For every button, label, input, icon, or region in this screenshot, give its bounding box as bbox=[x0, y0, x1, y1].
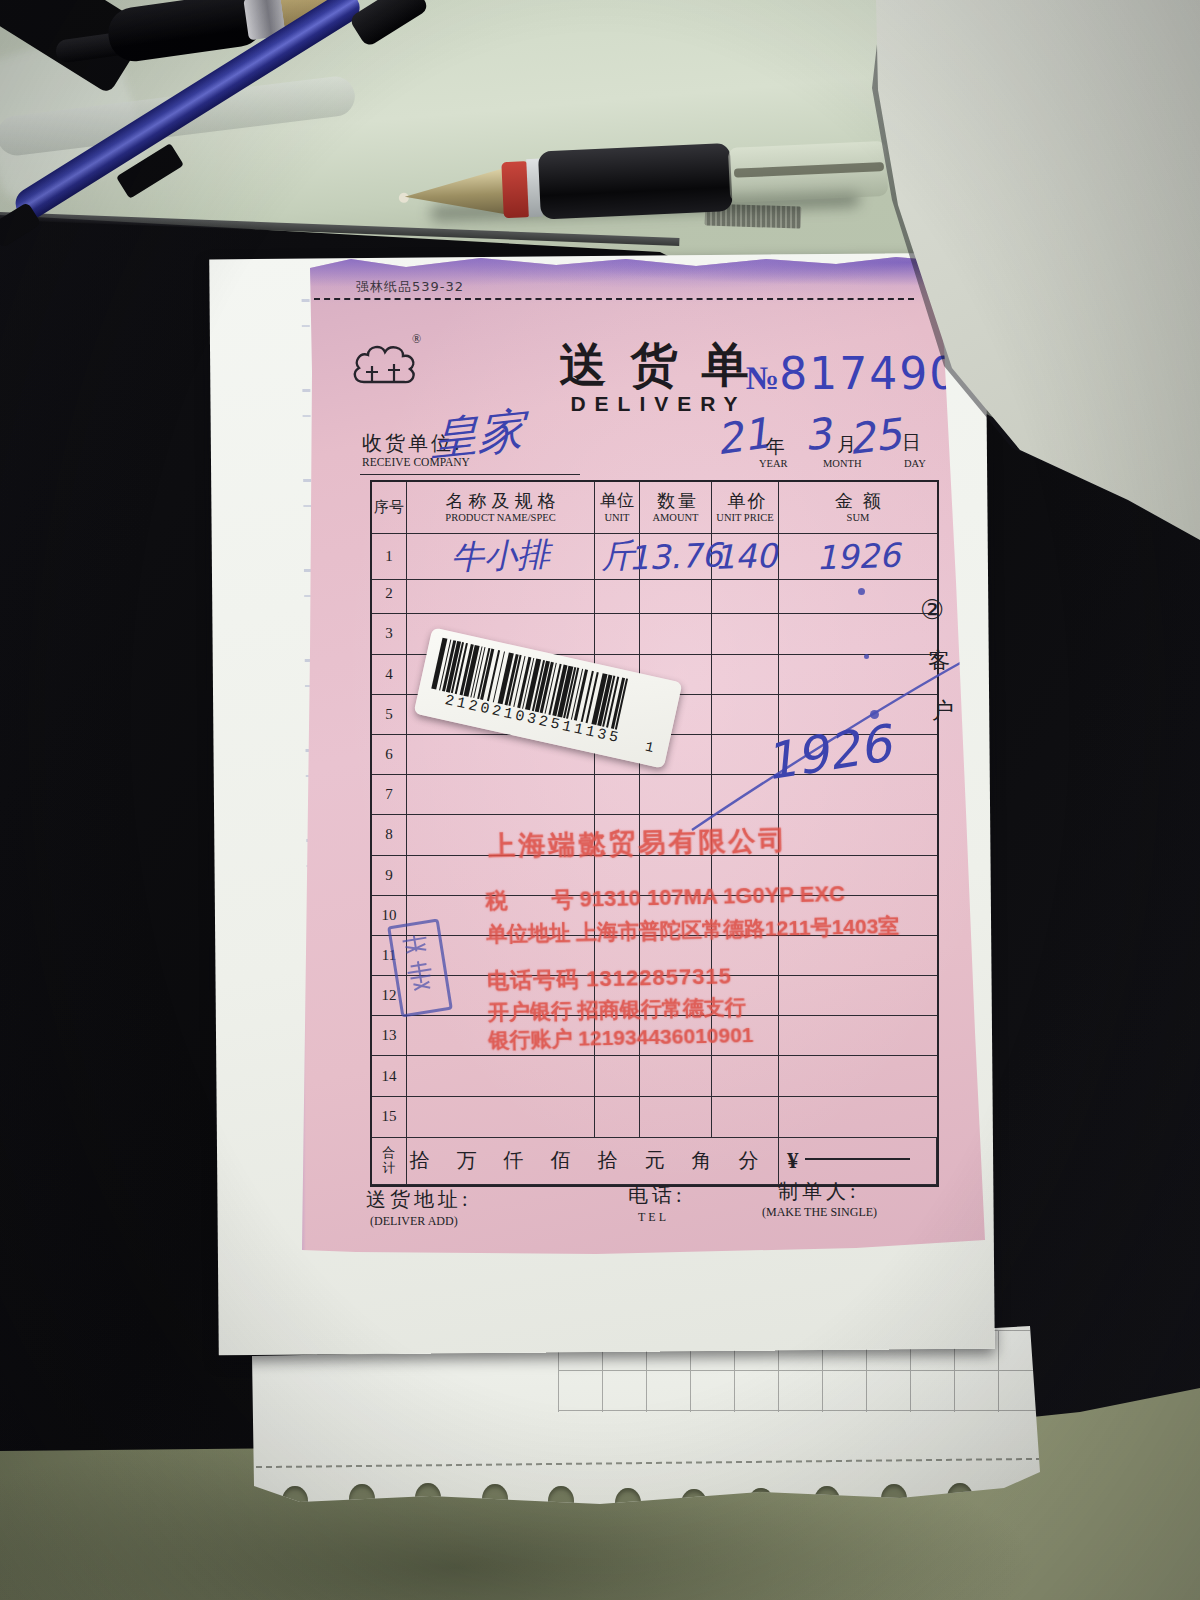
cell-no: 6 bbox=[372, 735, 407, 775]
table-row: 2 bbox=[372, 574, 937, 614]
cell-price: 140 bbox=[712, 534, 779, 580]
cell-name bbox=[407, 1056, 595, 1096]
day-label-en: DAY bbox=[904, 458, 926, 469]
cell-unit bbox=[595, 574, 640, 614]
cell-no: 2 bbox=[372, 574, 407, 614]
serial-prefix: № bbox=[746, 360, 779, 396]
cell-unit bbox=[595, 775, 640, 815]
copy-char-customer2: 户 bbox=[932, 696, 954, 726]
cell-no: 14 bbox=[372, 1056, 407, 1096]
cell-amount: 13.76 bbox=[640, 534, 712, 580]
cell-no: 8 bbox=[372, 815, 407, 855]
cell-no: 1 bbox=[372, 534, 407, 580]
cell-unit bbox=[595, 1056, 640, 1096]
cell-price bbox=[712, 695, 779, 735]
year-label-cn: 年 bbox=[766, 434, 785, 460]
cell-price bbox=[712, 614, 779, 654]
stamp-phone: 电话号码 13122857315 bbox=[487, 961, 732, 996]
header-amount: 数量AMOUNT bbox=[640, 482, 712, 534]
cell-no: 3 bbox=[372, 614, 407, 654]
cell-unit bbox=[595, 614, 640, 654]
cell-sum bbox=[779, 1056, 937, 1096]
cell-price bbox=[712, 655, 779, 695]
table-row: 1牛小排斤13.761401926 bbox=[372, 534, 937, 574]
header-sum: 金额SUM bbox=[779, 482, 937, 534]
registered-trademark: ® bbox=[412, 332, 421, 347]
table-row: 7 bbox=[372, 775, 937, 815]
cell-sum: 1926 bbox=[779, 534, 937, 580]
tel-label-en: TEL bbox=[638, 1210, 669, 1225]
cell-name bbox=[407, 1097, 595, 1137]
delivery-form: 强林纸品539-32 ® 送货单 DELIVERY №8174907 收货单位:… bbox=[296, 252, 996, 1258]
cell-name: 牛小排 bbox=[407, 534, 595, 580]
stamp-company: 上海端懿贸易有限公司 bbox=[488, 822, 789, 864]
cell-no: 13 bbox=[372, 1016, 407, 1056]
cell-sum bbox=[779, 655, 937, 695]
gel-pen-ball bbox=[399, 193, 409, 203]
tear-dashed-line bbox=[314, 298, 914, 300]
tel-label-cn: 电话: bbox=[628, 1182, 686, 1209]
header-unit: 单位UNIT bbox=[595, 482, 640, 534]
cell-no: 15 bbox=[372, 1097, 407, 1137]
cell-price bbox=[712, 1097, 779, 1137]
table-row: 14 bbox=[372, 1056, 937, 1096]
handwritten-month: 3 bbox=[802, 409, 834, 461]
table-header-row: 序号 名称及规格PRODUCT NAME/SPEC 单位UNIT 数量AMOUN… bbox=[372, 482, 937, 534]
gel-pen-cone-tip bbox=[404, 168, 506, 218]
cell-no: 5 bbox=[372, 695, 407, 735]
cell-amount bbox=[640, 574, 712, 614]
form-title-cn: 送货单 bbox=[524, 334, 784, 397]
handwritten-company: 皇家 bbox=[431, 399, 525, 471]
cell-amount bbox=[640, 1097, 712, 1137]
barcode-suffix: 1 bbox=[644, 738, 656, 755]
ink-dot bbox=[858, 588, 865, 595]
cell-amount bbox=[640, 1056, 712, 1096]
maker-label-en: (MAKE THE SINGLE) bbox=[762, 1205, 877, 1220]
cell-name bbox=[407, 775, 595, 815]
total-digit-scale: 拾万仟佰拾元角分 bbox=[407, 1138, 779, 1185]
year-label-en: YEAR bbox=[759, 458, 788, 469]
stamp-account: 银行账户 121934436010901 bbox=[488, 1021, 754, 1055]
table-row: 15 bbox=[372, 1097, 937, 1137]
cell-no: 4 bbox=[372, 655, 407, 695]
ink-dot bbox=[864, 654, 869, 659]
cell-sum bbox=[779, 815, 937, 855]
brand-logo-icon bbox=[350, 338, 422, 402]
copy-number: ② bbox=[920, 594, 944, 626]
handwritten-day: 25 bbox=[845, 409, 904, 464]
cell-no: 9 bbox=[372, 856, 407, 896]
copy-char-customer1: 客 bbox=[928, 646, 950, 676]
cell-no: 7 bbox=[372, 775, 407, 815]
cell-sum bbox=[779, 1016, 937, 1056]
handwritten-year: 21 bbox=[713, 409, 773, 465]
photo-scene: 强林纸品539-32 ® 送货单 DELIVERY №8174907 收货单位:… bbox=[0, 0, 1200, 1600]
cell-unit bbox=[595, 1097, 640, 1137]
cell-price bbox=[712, 574, 779, 614]
cell-amount bbox=[640, 614, 712, 654]
gel-pen bbox=[394, 115, 888, 233]
header-name: 名称及规格PRODUCT NAME/SPEC bbox=[407, 482, 595, 534]
cell-amount bbox=[640, 775, 712, 815]
gel-pen-grip bbox=[538, 143, 733, 220]
header-index: 序号 bbox=[372, 482, 407, 534]
cell-price bbox=[712, 1056, 779, 1096]
header-price: 单价UNIT PRICE bbox=[712, 482, 779, 534]
amount-underline bbox=[805, 1158, 910, 1160]
deliver-address-label-cn: 送货地址: bbox=[366, 1186, 472, 1213]
blue-pen-cap bbox=[348, 0, 429, 48]
cell-sum bbox=[779, 976, 937, 1016]
perforation-line bbox=[256, 1458, 1042, 1468]
paper-stock-code: 强林纸品539-32 bbox=[356, 278, 464, 296]
day-label-cn: 日 bbox=[902, 430, 921, 456]
maker-label-cn: 制单人: bbox=[778, 1178, 860, 1205]
cell-name bbox=[407, 574, 595, 614]
cell-sum bbox=[779, 574, 937, 614]
cell-sum bbox=[779, 1097, 937, 1137]
deliver-address-label-en: (DELIVER ADD) bbox=[370, 1214, 458, 1229]
cell-sum bbox=[779, 614, 937, 654]
receive-company-underline bbox=[360, 474, 580, 475]
